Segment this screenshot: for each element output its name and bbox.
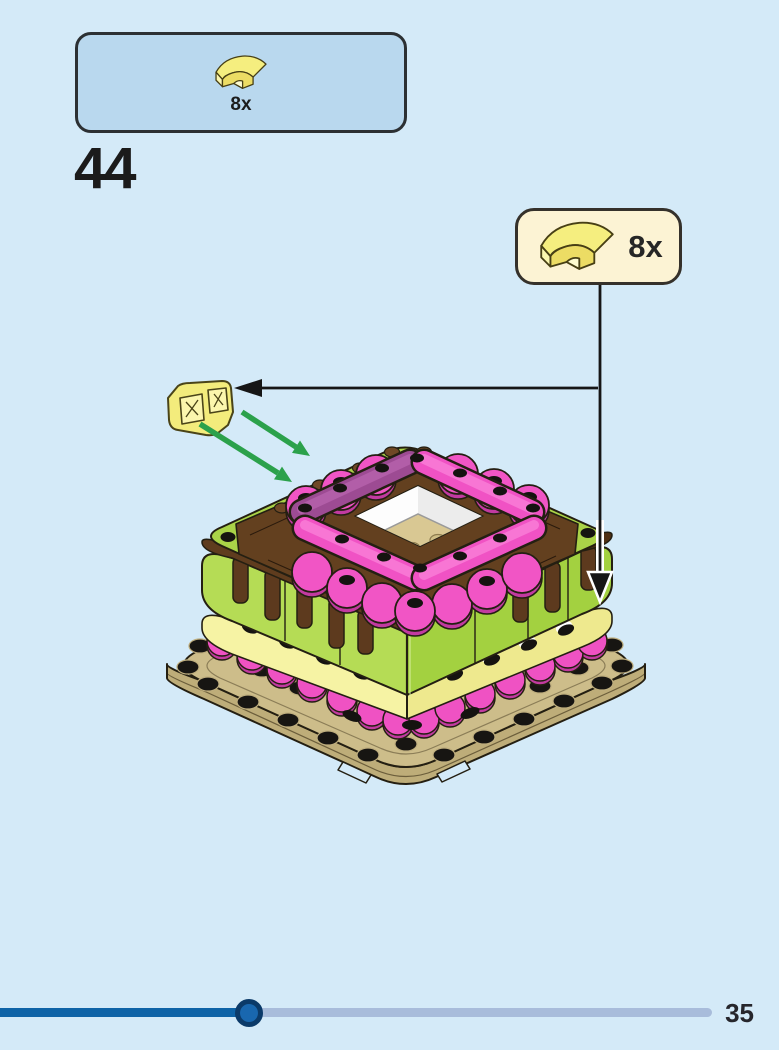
base-plate bbox=[167, 562, 645, 785]
frame-bars bbox=[298, 454, 540, 579]
curved-slope-piece-icon bbox=[212, 52, 270, 94]
progress-thumb[interactable] bbox=[235, 999, 263, 1027]
green-guide-arrows bbox=[200, 412, 310, 482]
callout-quantity-label: 8x bbox=[628, 231, 662, 262]
brown-tabs bbox=[233, 546, 596, 654]
parts-quantity-label: 8x bbox=[230, 95, 251, 114]
parts-panel: 8x bbox=[75, 32, 407, 133]
progress-fill bbox=[0, 1008, 249, 1017]
progress-track[interactable] bbox=[0, 1008, 712, 1017]
curved-slope-piece-icon bbox=[534, 217, 620, 277]
yellow-band bbox=[202, 608, 612, 719]
top-face bbox=[211, 447, 603, 625]
interior-opening bbox=[356, 486, 482, 574]
green-wall bbox=[202, 547, 612, 697]
page-number: 35 bbox=[725, 998, 754, 1029]
progress-bar: 35 bbox=[0, 994, 779, 1034]
part-callout: 8x bbox=[515, 208, 682, 285]
placement-piece bbox=[168, 381, 233, 435]
step-number: 44 bbox=[74, 140, 135, 198]
black-leader-arrows bbox=[234, 285, 612, 602]
scallop-ring-top bbox=[286, 454, 549, 636]
scallop-row-bottom bbox=[207, 626, 607, 739]
base-studs bbox=[177, 623, 633, 762]
brown-rim bbox=[202, 532, 612, 633]
instruction-page: { "page": { "number": "35", "background_… bbox=[0, 0, 779, 1050]
